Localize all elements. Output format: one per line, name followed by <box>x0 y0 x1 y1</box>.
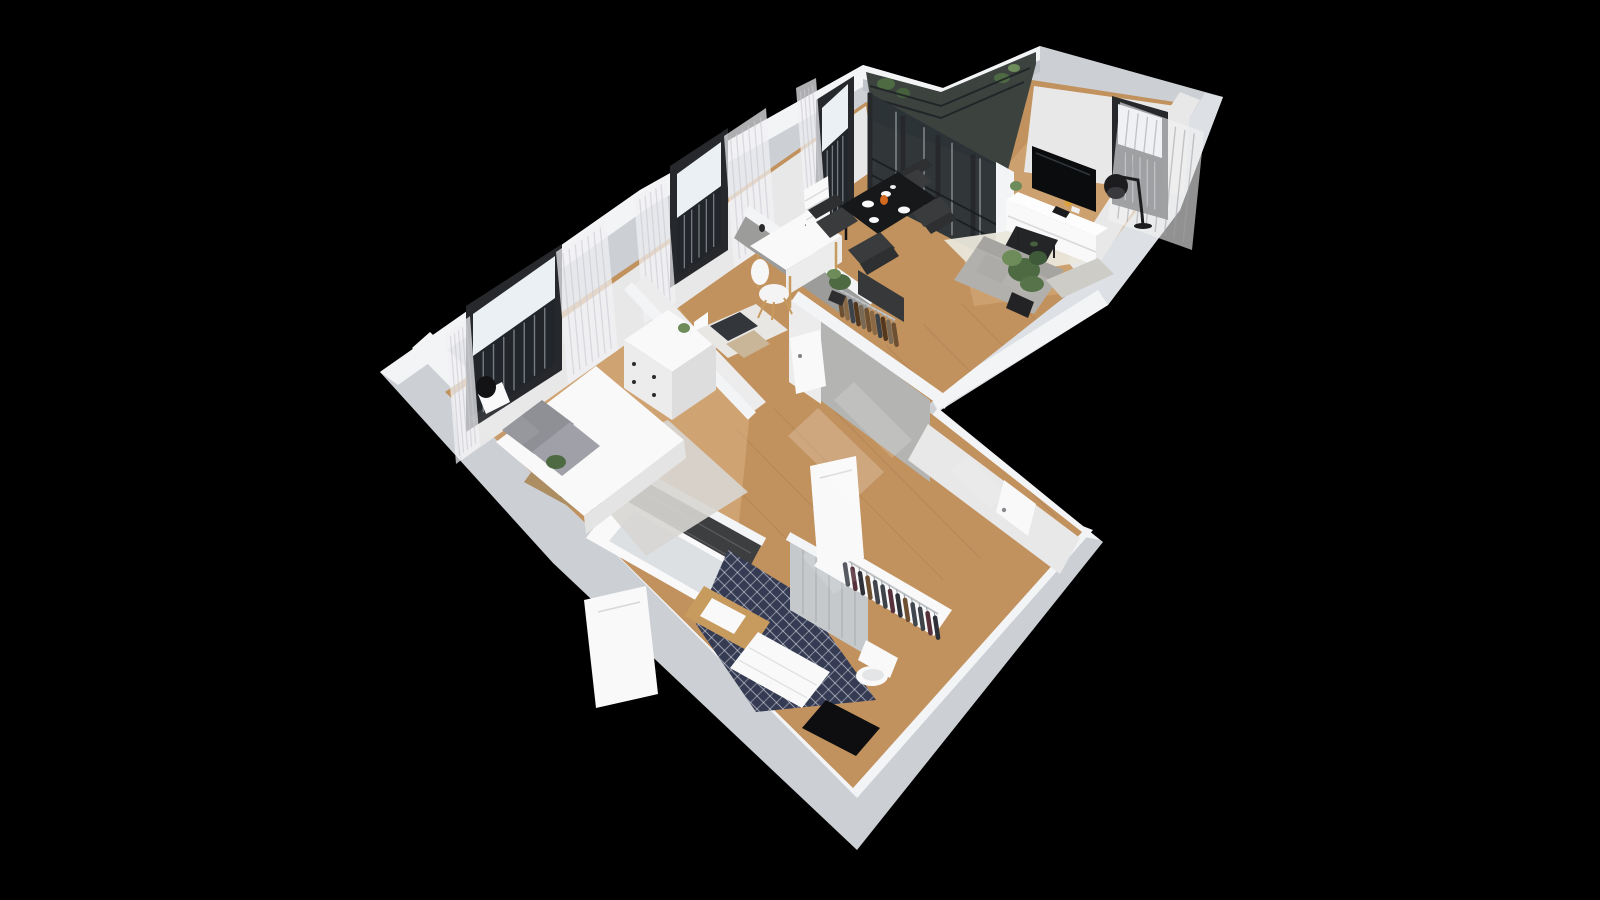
coffee-table-decor <box>1030 242 1038 247</box>
floor-lamp-inner <box>1107 187 1125 199</box>
living-plant-2 <box>1002 250 1022 266</box>
office-plant-top <box>827 269 841 279</box>
dresser-plant-pot <box>680 333 688 339</box>
closet-door <box>790 330 826 394</box>
dining-plate-4 <box>869 217 879 223</box>
dresser-plant <box>678 323 690 333</box>
dresser-knob-3 <box>652 375 656 379</box>
desk-figurine <box>759 224 765 232</box>
dresser-knob-4 <box>652 393 656 397</box>
dresser-knob-1 <box>632 362 636 366</box>
dresser-knob-2 <box>632 380 636 384</box>
balcony-plant-4 <box>1008 64 1020 72</box>
office-chair-back <box>751 259 769 285</box>
closet-door-handle <box>798 354 802 358</box>
living-plant-4 <box>1020 276 1044 292</box>
toilet-seat <box>862 669 884 681</box>
apartment-3d-floorplan <box>0 0 1600 900</box>
floor-lamp-base <box>1134 223 1152 229</box>
corridor-door-handle <box>1002 508 1006 512</box>
dining-cup <box>890 185 896 189</box>
bedroom-door <box>584 586 658 708</box>
dining-pitcher <box>880 195 888 205</box>
bedroom-plant <box>546 455 566 469</box>
living-plant-3 <box>1029 251 1047 265</box>
dining-plate-3 <box>898 207 910 214</box>
console-plant <box>1010 181 1022 191</box>
dining-plate-1 <box>862 201 874 208</box>
floorplan-render: Isometric cutaway 3D render of a furnish… <box>0 0 1600 900</box>
bedside-lamp <box>476 376 496 398</box>
